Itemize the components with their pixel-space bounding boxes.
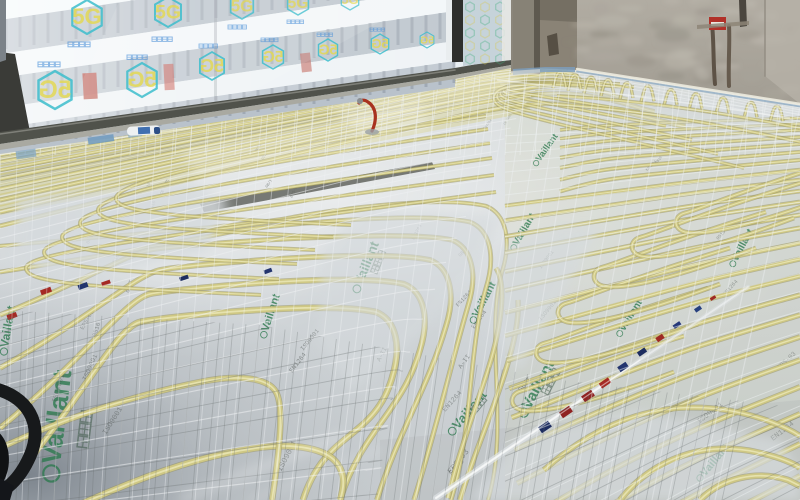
svg-text:5G: 5G [420,35,434,46]
svg-text:5G: 5G [39,77,72,104]
svg-text:5G: 5G [341,0,358,7]
svg-text:5G: 5G [263,49,284,66]
svg-text:5G: 5G [127,67,156,92]
svg-text:5G: 5G [155,1,181,23]
svg-text:5G: 5G [318,43,337,59]
svg-text:5G: 5G [288,0,309,12]
svg-text:5G: 5G [200,56,224,76]
svg-text:5G: 5G [371,36,388,51]
svg-text:5G: 5G [72,4,101,29]
svg-text:5G: 5G [231,0,254,15]
